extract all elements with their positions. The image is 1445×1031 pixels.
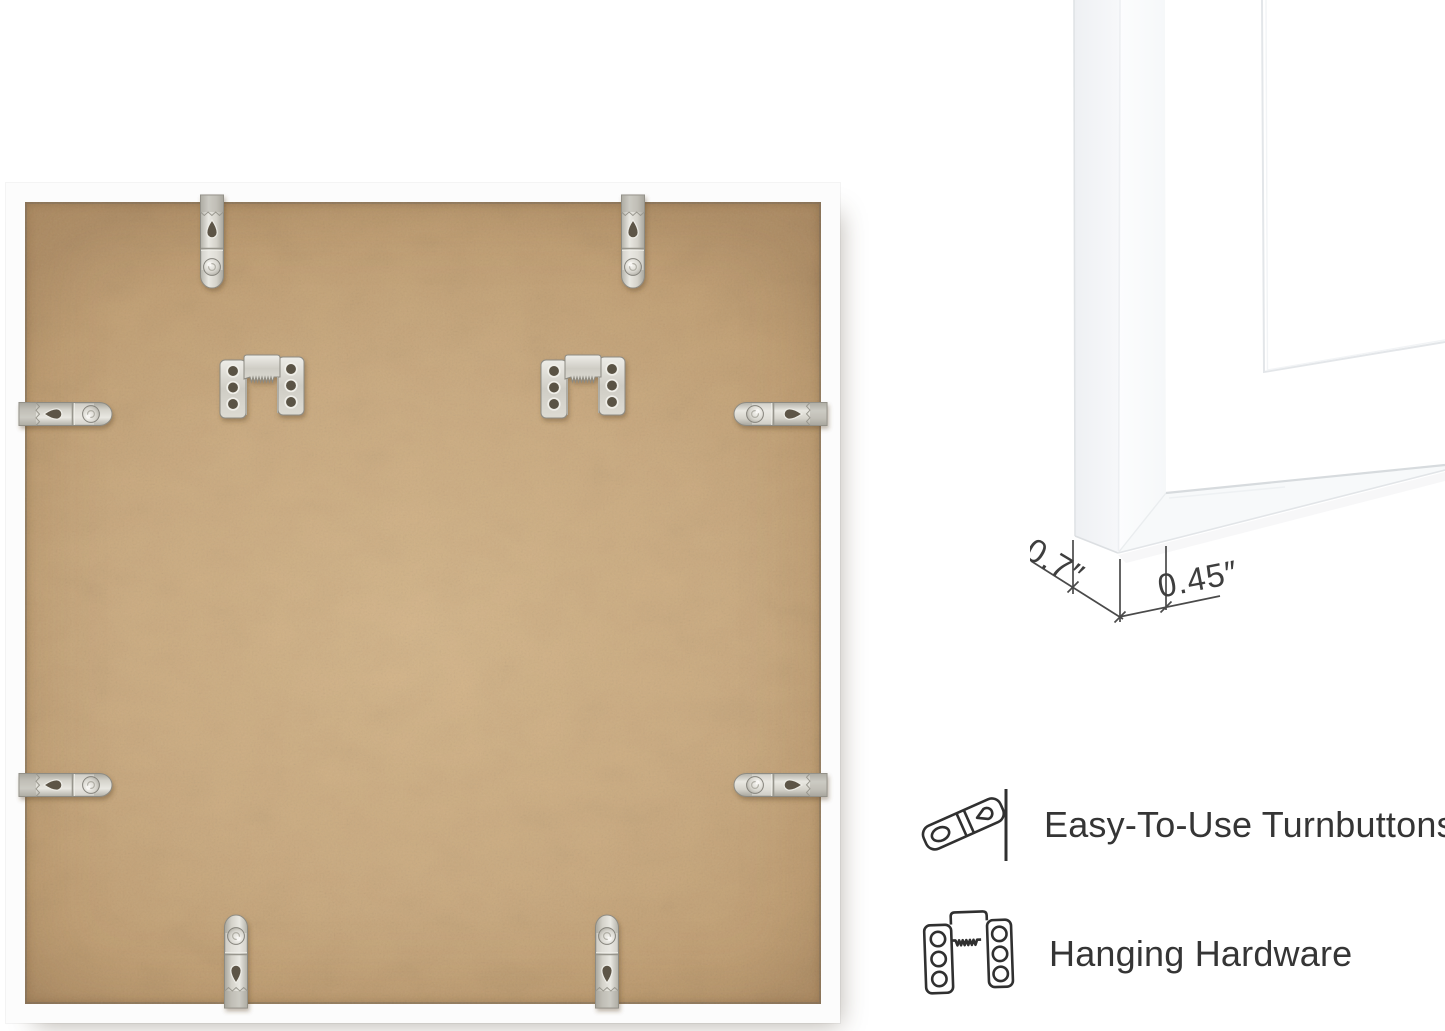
turnbutton-clip	[595, 915, 618, 1008]
feature-item: Hanging Hardware	[915, 908, 1352, 1000]
feature-item: Easy-To-Use Turnbuttons	[915, 783, 1445, 867]
frame-back-photo	[6, 183, 840, 1023]
feature-label: Easy-To-Use Turnbuttons	[1044, 804, 1445, 846]
turnbutton-clip	[200, 195, 223, 288]
feature-list: Easy-To-Use Turnbuttons Hanging Hardware	[915, 0, 1445, 1031]
product-image: 0.7″ 0.45″ Easy-To-Use Turnbuttons	[0, 0, 1445, 1031]
turnbutton-clip	[734, 773, 827, 796]
turnbutton-clip	[19, 773, 112, 796]
turnbutton-clip	[621, 195, 644, 288]
feature-label: Hanging Hardware	[1049, 933, 1352, 975]
frame-hardware	[6, 183, 840, 1023]
hanging-hardware-icon	[915, 908, 1017, 1000]
turnbutton-icon	[915, 783, 1012, 867]
sawtooth-hanger	[220, 355, 304, 418]
turnbutton-clip	[19, 402, 112, 425]
turnbutton-clip	[734, 402, 827, 425]
sawtooth-hanger	[541, 355, 625, 418]
turnbutton-clip	[224, 915, 247, 1008]
